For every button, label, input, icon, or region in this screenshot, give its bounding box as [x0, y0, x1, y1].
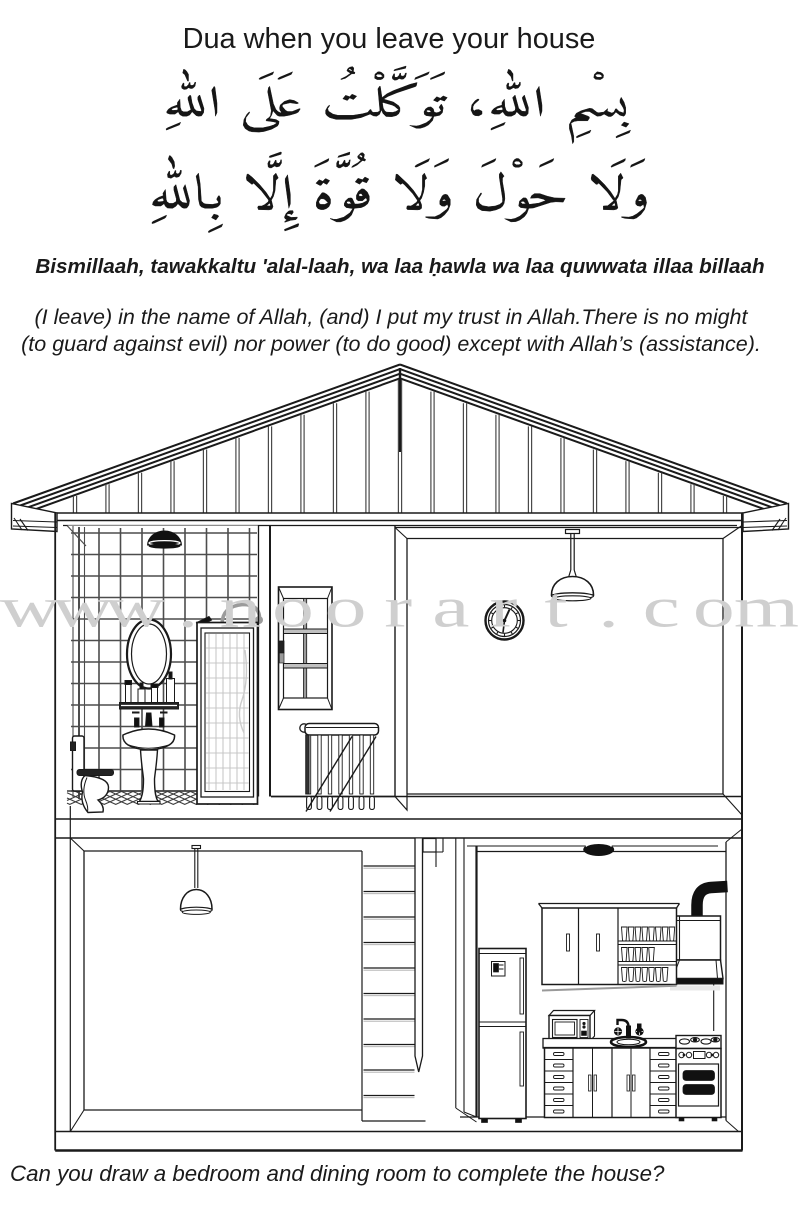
svg-text:o: o: [272, 576, 314, 639]
svg-text:m: m: [734, 576, 799, 639]
svg-text:o: o: [325, 576, 367, 639]
svg-text:w: w: [105, 576, 166, 639]
svg-text:.: .: [598, 576, 619, 639]
svg-text:.: .: [177, 576, 198, 639]
svg-text:n: n: [219, 576, 261, 639]
svg-text:a: a: [432, 576, 469, 639]
svg-text:r: r: [489, 576, 517, 639]
svg-text:r: r: [384, 576, 412, 639]
svg-text:o: o: [693, 576, 735, 639]
svg-text:t: t: [544, 576, 567, 639]
svg-text:c: c: [643, 576, 680, 639]
